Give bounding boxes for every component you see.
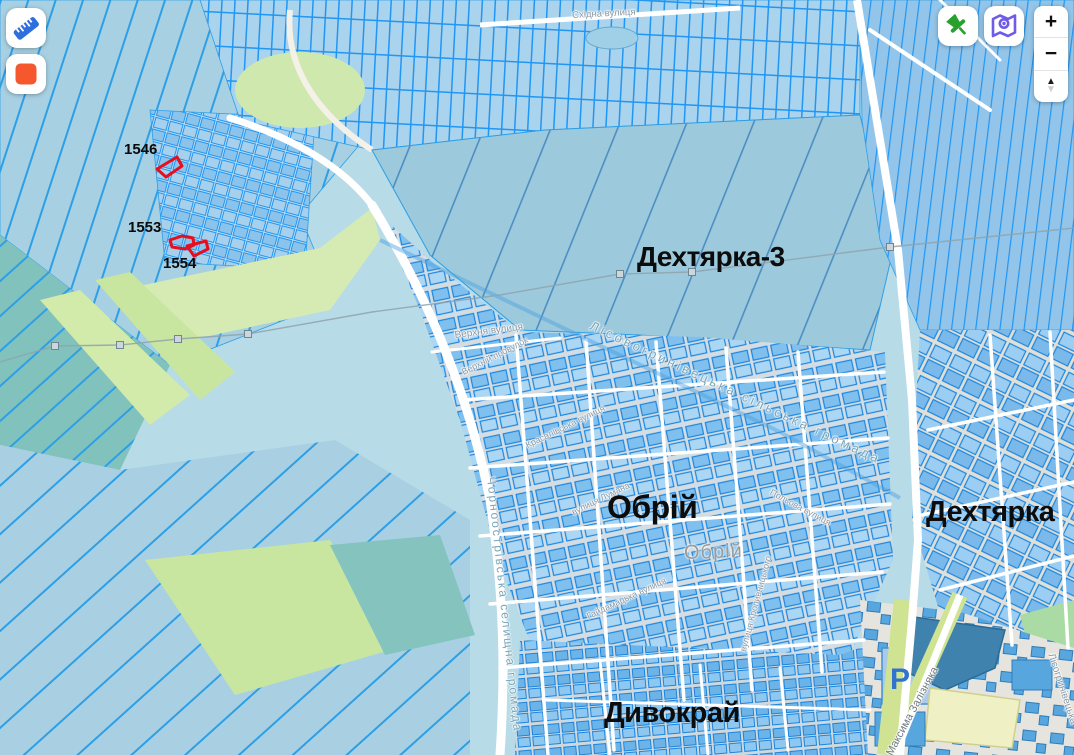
- zoom-control: + − ▲ ▼: [1034, 6, 1068, 102]
- ruler-icon: [6, 8, 46, 48]
- map-canvas[interactable]: [0, 0, 1074, 755]
- tilt-down-arrow-icon[interactable]: ▼: [1046, 86, 1056, 94]
- stop-square-icon: [6, 54, 46, 94]
- purple-map-pin-icon: [984, 6, 1024, 46]
- zoom-out-button[interactable]: −: [1034, 37, 1068, 69]
- map-viewport[interactable]: 1546 1553 1554 Дехтярка-3 Обрій Дехтярка…: [0, 0, 1074, 755]
- stop-drawing-button[interactable]: [6, 54, 46, 94]
- pond: [586, 27, 638, 49]
- park-blob: [235, 52, 365, 128]
- village-dyvokrai: [515, 640, 880, 755]
- green-pushpin-icon: [938, 6, 978, 46]
- measure-tool-button[interactable]: [6, 8, 46, 48]
- placemark-tool-button[interactable]: [938, 6, 978, 46]
- tilt-control[interactable]: ▲ ▼: [1034, 70, 1068, 102]
- map-style-button[interactable]: [984, 6, 1024, 46]
- building-1: [1012, 660, 1052, 690]
- zoom-in-button[interactable]: +: [1034, 6, 1068, 37]
